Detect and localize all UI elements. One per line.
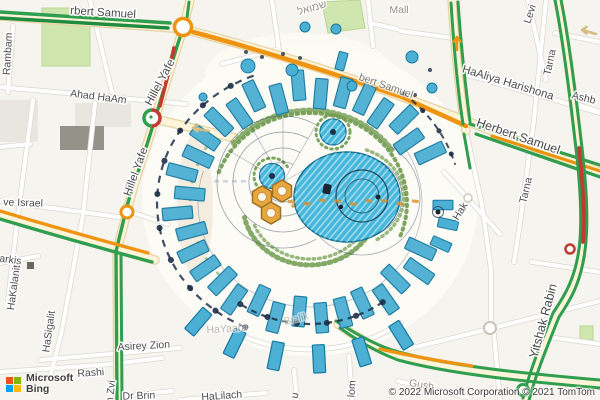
street-label-lom: lom <box>345 380 358 398</box>
map-copyright: © 2022 Microsoft Corporation © 2021 TomT… <box>389 387 595 398</box>
poi-label-mall: Mall <box>389 4 408 16</box>
map-canvas[interactable]: rbert Samuel bert Samuel Herbert Samuel … <box>0 0 600 400</box>
map-frame: rbert Samuel bert Samuel Herbert Samuel … <box>0 0 600 400</box>
street-label-dr-brin: Dr Brin <box>122 389 155 400</box>
bing-logo-line2: Bing <box>26 384 73 395</box>
street-label-halilach: HaLilach <box>201 389 243 400</box>
street-label-mikve-israel: ve Israel <box>3 196 43 209</box>
street-label-rashi: Rashi <box>77 366 105 380</box>
bing-logo-text: Microsoft Bing <box>26 373 73 395</box>
microsoft-logo-icon <box>6 377 21 392</box>
street-label-rambam: Rambam <box>1 32 15 75</box>
street-label-ben-zvi: n Zvi <box>104 380 118 400</box>
bing-logo[interactable]: Microsoft Bing <box>6 373 73 395</box>
